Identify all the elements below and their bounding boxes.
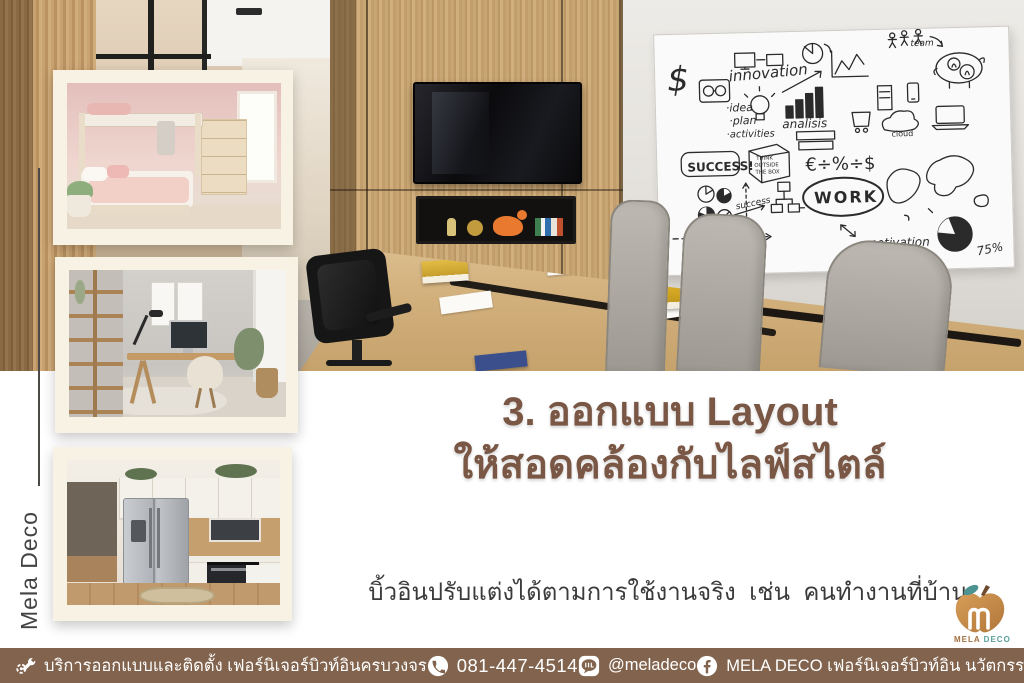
paper-sheet: [439, 290, 493, 314]
display-niche: [416, 196, 576, 244]
polaroid-kitchen: [53, 447, 292, 621]
line-icon: [578, 655, 600, 677]
line-item: @meladeco: [578, 655, 696, 677]
desk-lamp-head: [149, 310, 163, 317]
gold-book: [421, 258, 468, 283]
heading-line-1: 3. ออกแบบ Layout: [320, 386, 1020, 439]
shelf-upright: [93, 270, 97, 417]
chair-post: [352, 340, 362, 362]
lightbulb-icon: [751, 96, 769, 114]
brand-vertical-label: Mela Deco: [16, 494, 43, 630]
poster: $ innovation ·idea ·plan ·activities ana…: [0, 0, 1024, 683]
tv-screen: [413, 82, 582, 184]
polaroid-bedroom: [53, 70, 293, 245]
glass-beam: [96, 54, 211, 59]
doodle-75pct-label: 75%: [975, 239, 1004, 258]
formula-box: [797, 131, 835, 140]
polaroid-home-office: [55, 257, 298, 433]
doorway-floor: [67, 556, 117, 582]
phone-item: 081-447-4514: [427, 655, 578, 677]
bed-drawer: [87, 205, 189, 215]
blue-notebook: [474, 350, 527, 371]
doodle-succeed-label: success: [735, 196, 772, 213]
home-office-photo: [69, 270, 286, 417]
piggy-bank-icon: [934, 52, 985, 88]
doodle-team-label: team: [910, 39, 934, 50]
apple-icon: MELADECO: [946, 582, 1012, 644]
cabinet-greenery: [125, 468, 157, 480]
tools-icon: [14, 655, 36, 677]
meeting-chair-gray: [676, 212, 768, 371]
phone-number: 081-447-4514: [457, 655, 578, 677]
desktop-computer: [169, 320, 209, 350]
meeting-chair-gray: [819, 237, 956, 371]
doodle-dollar: $: [667, 60, 690, 101]
facebook-item: MELA DECO เฟอร์นิเจอร์บิวท์อิน นวัตกรรมใ…: [696, 653, 1024, 679]
ceiling-vent: [236, 8, 262, 15]
balloon-dog-decor: [493, 216, 523, 236]
desk-lamp-arm: [133, 315, 149, 345]
doodle-work-label: WORK: [814, 187, 878, 208]
cabinet-greenery: [215, 464, 257, 478]
indoor-plant: [234, 328, 264, 370]
divider-line: [38, 168, 40, 486]
phone-icon: [427, 655, 449, 677]
pink-blanket: [89, 177, 189, 203]
plant-basket: [67, 195, 91, 217]
cart-icon: [852, 112, 870, 126]
fridge-handle: [149, 508, 152, 568]
pillow: [107, 165, 129, 178]
bunk-pillows: [87, 103, 131, 115]
doodle-currency-symbols: €÷%÷$: [805, 153, 876, 176]
office-desk: [127, 353, 239, 360]
microwave: [209, 518, 261, 542]
doodle-activities-label: ·activities: [726, 128, 775, 140]
pillow: [83, 167, 107, 181]
gold-disc-decor: [467, 220, 483, 236]
office-chair-beige: [187, 356, 223, 390]
doodle-outside-label: OUTSIDE: [754, 162, 779, 169]
laptop-icon: [936, 106, 964, 124]
body-line-1: บิ้วอินปรับแต่งได้ตามการใช้งานจริง เช่น …: [316, 574, 1020, 611]
kitchen-photo: [67, 460, 280, 605]
water-dispenser: [131, 520, 146, 542]
brand-logo: MELADECO: [946, 582, 1012, 644]
logo-wordmark: MELADECO: [954, 635, 1011, 644]
bedroom-photo: [67, 83, 281, 229]
pie-75-icon: [938, 217, 973, 252]
panel-seam: [330, 189, 623, 191]
books-decor: [535, 218, 563, 236]
world-map-icon: [886, 155, 988, 221]
ceiling: [206, 0, 330, 66]
chair-base: [326, 360, 392, 366]
meeting-chair-gray: [605, 199, 671, 371]
bar-chart-icon: [786, 106, 793, 118]
doodle-innovation-label: innovation: [728, 60, 809, 85]
bunk-post: [195, 113, 201, 177]
doodle-success-label: SUCCESS!: [687, 159, 754, 175]
doodle-plan-label: ·plan: [729, 114, 757, 128]
footer-bar: บริการออกแบบและติดตั้ง เฟอร์นิเจอร์บิวท์…: [0, 648, 1024, 683]
heading-line-2: ให้สอดคล้องกับไลฟ์สไตล์: [320, 439, 1020, 492]
hanging-towel: [157, 121, 175, 155]
service-text: บริการออกแบบและติดตั้ง เฟอร์นิเจอร์บิวท์…: [44, 653, 427, 679]
kitchen-rug: [139, 587, 215, 604]
bedroom-shelf: [201, 119, 247, 195]
bunk-bed-top: [79, 113, 203, 127]
doodle-thebox-label: THE BOX: [754, 169, 780, 176]
office-chair-black: [308, 248, 418, 371]
tv-glare: [432, 92, 490, 174]
facebook-icon: [696, 655, 718, 677]
line-handle: @meladeco: [608, 656, 696, 675]
plant-basket: [256, 368, 278, 398]
facebook-name: MELA DECO เฟอร์นิเจอร์บิวท์อิน นวัตกรรมใ…: [726, 653, 1024, 679]
doodle-idea-label: ·idea: [726, 101, 754, 115]
section-heading: 3. ออกแบบ Layout ให้สอดคล้องกับไลฟ์สไตล์: [320, 386, 1020, 492]
wood-column-dark: [0, 0, 33, 371]
fridge-handle: [157, 508, 160, 568]
trophy-decor: [447, 218, 456, 236]
double-arrow: [841, 225, 855, 237]
service-item: บริการออกแบบและติดตั้ง เฟอร์นิเจอร์บิวท์…: [14, 653, 427, 679]
flowchart-icon: [778, 182, 790, 191]
shelf-plant: [75, 280, 85, 304]
